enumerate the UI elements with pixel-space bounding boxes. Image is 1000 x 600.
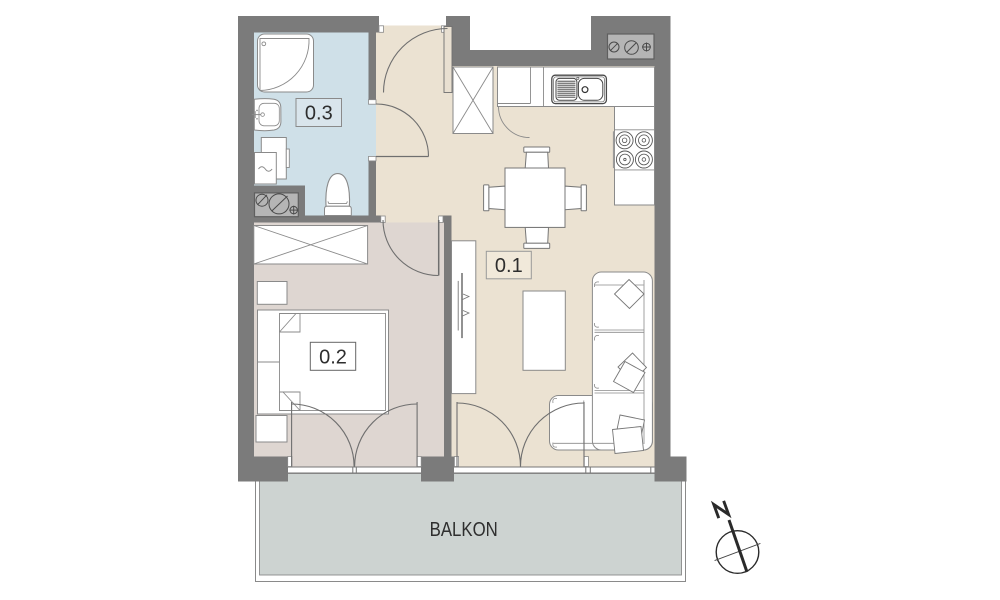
svg-text:0.1: 0.1 xyxy=(495,255,523,277)
svg-text:0.2: 0.2 xyxy=(319,347,347,369)
svg-text:BALKON: BALKON xyxy=(430,518,498,541)
svg-text:0.3: 0.3 xyxy=(305,103,333,125)
